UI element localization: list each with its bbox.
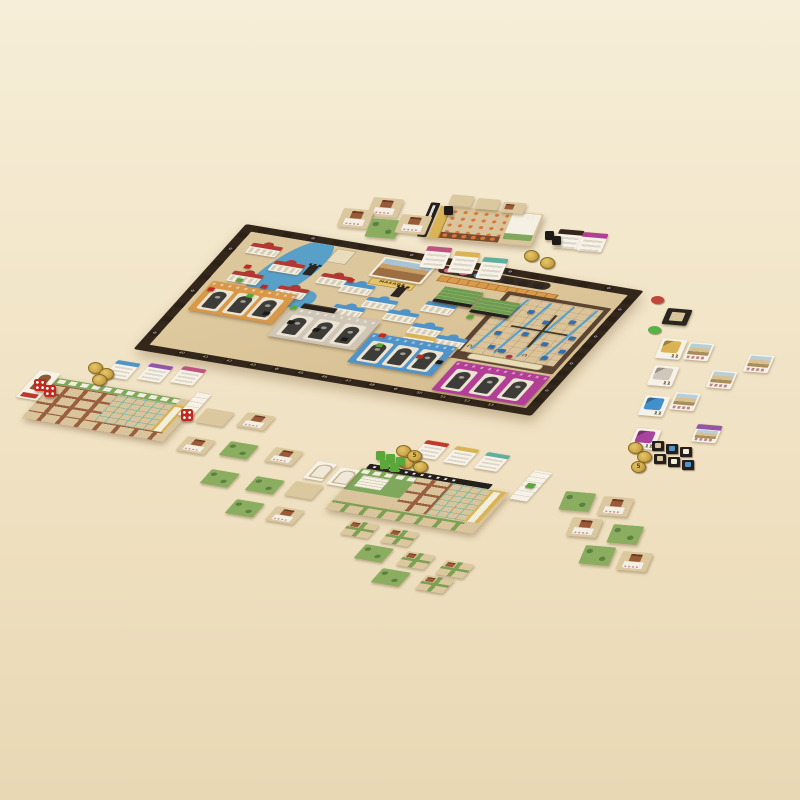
house-icon (350, 522, 362, 527)
house-icon (390, 530, 402, 535)
gate-slate (501, 380, 529, 398)
scene-card (683, 342, 715, 361)
banner-card-pink (170, 366, 207, 386)
scene-card (743, 354, 775, 373)
house-icon (445, 562, 457, 567)
reward-tile (654, 454, 666, 464)
score-track-cell: ✿ (589, 334, 602, 340)
score-track-cell: ✿ (540, 388, 553, 394)
black-cube (552, 236, 561, 245)
terrain-tile (264, 506, 305, 525)
score-track-cell: 40 (175, 350, 188, 356)
terrain-tile (606, 524, 644, 545)
score-track-cell: 53 (484, 402, 497, 408)
score-track-cell (556, 370, 569, 376)
tile-label (372, 207, 396, 216)
gate-slate (334, 326, 362, 344)
banner-band (482, 257, 509, 264)
framed-tile (661, 308, 692, 326)
banner-card-rows (479, 264, 503, 277)
gate-slate (445, 371, 473, 389)
banner-band (582, 232, 609, 239)
gold-coin (413, 461, 428, 473)
reward-mark (671, 459, 677, 464)
main-board: MASADA ∩ ∩ ∩ ∩ 40414243✿45464748✿5051525… (134, 224, 644, 416)
scene-card-art (710, 371, 735, 383)
gold-coin (92, 374, 107, 386)
terrain-tile (353, 544, 394, 563)
blue-ramp-cube (568, 320, 577, 325)
terrain-tile (434, 560, 475, 579)
terrain-tile (395, 551, 436, 570)
terrain-tile (218, 441, 259, 460)
score-track-cell: 41 (199, 354, 212, 360)
leader-card-footer (20, 392, 39, 399)
tent-card-blue: 11 (638, 395, 671, 417)
terrain-tile (244, 476, 285, 495)
terrain-tile (339, 520, 380, 539)
score-track-cell: 43 (246, 362, 259, 368)
terrain-tile (500, 202, 527, 214)
house-icon (350, 211, 364, 219)
score-track-cell: 48 (365, 382, 378, 388)
tile-label (602, 506, 626, 515)
scene-card-art (687, 343, 712, 355)
blue-ramp-cube (540, 342, 549, 347)
blue-ramp-cube (558, 349, 567, 354)
framed-tile-center (669, 312, 686, 322)
scene-card (669, 392, 701, 411)
banner-card-rows (447, 451, 473, 463)
terrain-tile (283, 481, 324, 500)
tent-value: 11 (670, 354, 680, 359)
banner-card-rows (174, 371, 200, 383)
scene-card-caption (672, 405, 692, 409)
house-icon (629, 554, 643, 562)
scene-card-art (747, 355, 772, 367)
score-track-cell: 52 (460, 398, 473, 404)
reward-mark (657, 456, 663, 461)
score-track-cell: 46 (317, 374, 330, 380)
score-track-cell (605, 316, 618, 322)
red-bonus-disc (651, 296, 664, 304)
tile-label (621, 561, 645, 570)
tent-value: 11 (662, 381, 672, 386)
green-cube (380, 460, 389, 469)
banner-card-rows (579, 239, 603, 252)
tile-label (571, 527, 595, 536)
house-icon (380, 200, 394, 208)
tent-icon (660, 340, 682, 353)
score-track-cell (532, 397, 545, 403)
scene-card-caption (694, 437, 714, 441)
scene-card-art (673, 393, 698, 405)
player-board-top (419, 205, 545, 246)
scene-card-caption (746, 367, 766, 371)
scene-card (691, 424, 723, 443)
blue-ramp-cube (493, 331, 502, 336)
house-icon (504, 204, 515, 210)
reward-mark (685, 462, 691, 467)
score-track-cell: 45 (294, 370, 307, 376)
tent-card-white: 11 (647, 365, 680, 387)
black-cube (444, 206, 453, 215)
score-track-cell: 50 (412, 390, 425, 396)
terrain-tile (474, 198, 501, 210)
green-section-table (354, 475, 390, 490)
terrain-tile (370, 568, 411, 587)
reward-mark (655, 443, 661, 448)
green-cube (376, 451, 385, 460)
reward-mark (669, 446, 675, 451)
terrain-tile (194, 408, 235, 427)
banner-card-rows (451, 258, 475, 271)
blue-ramp-cube (521, 332, 530, 337)
banner-card-teal (474, 452, 511, 472)
reward-tile (652, 441, 664, 451)
house-icon (406, 553, 418, 558)
score-track-cell: ✿ (389, 386, 402, 392)
tile-label (400, 224, 424, 233)
red-die (181, 409, 193, 421)
scene-card (706, 370, 738, 389)
banner-band (426, 246, 453, 253)
reward-tile (682, 460, 694, 470)
house-icon (425, 577, 437, 582)
terrain-tile (565, 517, 603, 538)
terrain-tile (224, 499, 265, 518)
score-track-cell (548, 379, 561, 385)
banner-card-rows (141, 368, 167, 380)
round-disc-empty (532, 282, 546, 288)
tent-value: 11 (653, 411, 663, 416)
score-track-cell: ✿ (613, 307, 626, 313)
tile-label (342, 218, 366, 227)
house-icon (579, 520, 593, 528)
tent-icon (652, 367, 674, 380)
blue-ramp-cube (567, 336, 576, 341)
score-track-cell (581, 343, 594, 349)
red-die (44, 385, 56, 397)
score-track-cell (572, 352, 585, 358)
banner-card-rows (478, 457, 504, 469)
reward-tile (668, 457, 680, 467)
gate-slate (473, 376, 501, 394)
banner-card-rows (423, 253, 447, 266)
score-track-cell (597, 325, 610, 331)
banner-card-yellow (443, 446, 480, 466)
terrain-tile (558, 491, 596, 512)
green-bonus-disc (648, 326, 661, 334)
score-track-cell: 42 (222, 358, 235, 364)
house-icon (408, 217, 422, 225)
reward-mark (683, 449, 689, 454)
score-track-cell: ✿ (270, 366, 283, 372)
gold-coin (524, 250, 539, 262)
banner-band (558, 229, 585, 236)
gate-slate (281, 317, 309, 335)
terrain-tile (379, 528, 420, 547)
blue-ramp-cube (526, 310, 535, 315)
score-track-cell: 51 (436, 394, 449, 400)
score-track-cell: ✿ (564, 361, 577, 367)
terrain-tile (596, 496, 634, 517)
score-track-cell: 47 (341, 378, 354, 384)
terrain-tile (448, 194, 475, 206)
round-disc-empty (517, 280, 531, 286)
reward-tile (666, 444, 678, 454)
green-cube (390, 463, 399, 472)
terrain-tile (578, 545, 616, 566)
terrain-tile (414, 575, 455, 594)
scene-card-caption (686, 355, 706, 359)
green-cube (525, 483, 537, 489)
terrain-tile (263, 447, 304, 466)
tent-icon (643, 397, 665, 410)
terrain-tile (235, 412, 276, 431)
scene-card-caption (709, 383, 729, 387)
gold-coin-value: 5 (407, 450, 422, 462)
column-card (509, 470, 553, 502)
terrain-tile (175, 436, 216, 455)
round-disc-empty (502, 277, 516, 283)
reward-tile (680, 447, 692, 457)
score-card-green-footer (502, 233, 533, 241)
banner-band (454, 251, 481, 258)
score-track-cell (621, 298, 634, 304)
terrain-tile (199, 469, 240, 488)
gold-coin-value: 5 (631, 461, 646, 473)
house-icon (610, 499, 624, 507)
tabletop-scene: MASADA ∩ ∩ ∩ ∩ 40414243✿45464748✿5051525… (0, 0, 800, 800)
banner-card-purple (137, 363, 174, 383)
gold-coin (540, 257, 555, 269)
terrain-tile (615, 551, 653, 572)
